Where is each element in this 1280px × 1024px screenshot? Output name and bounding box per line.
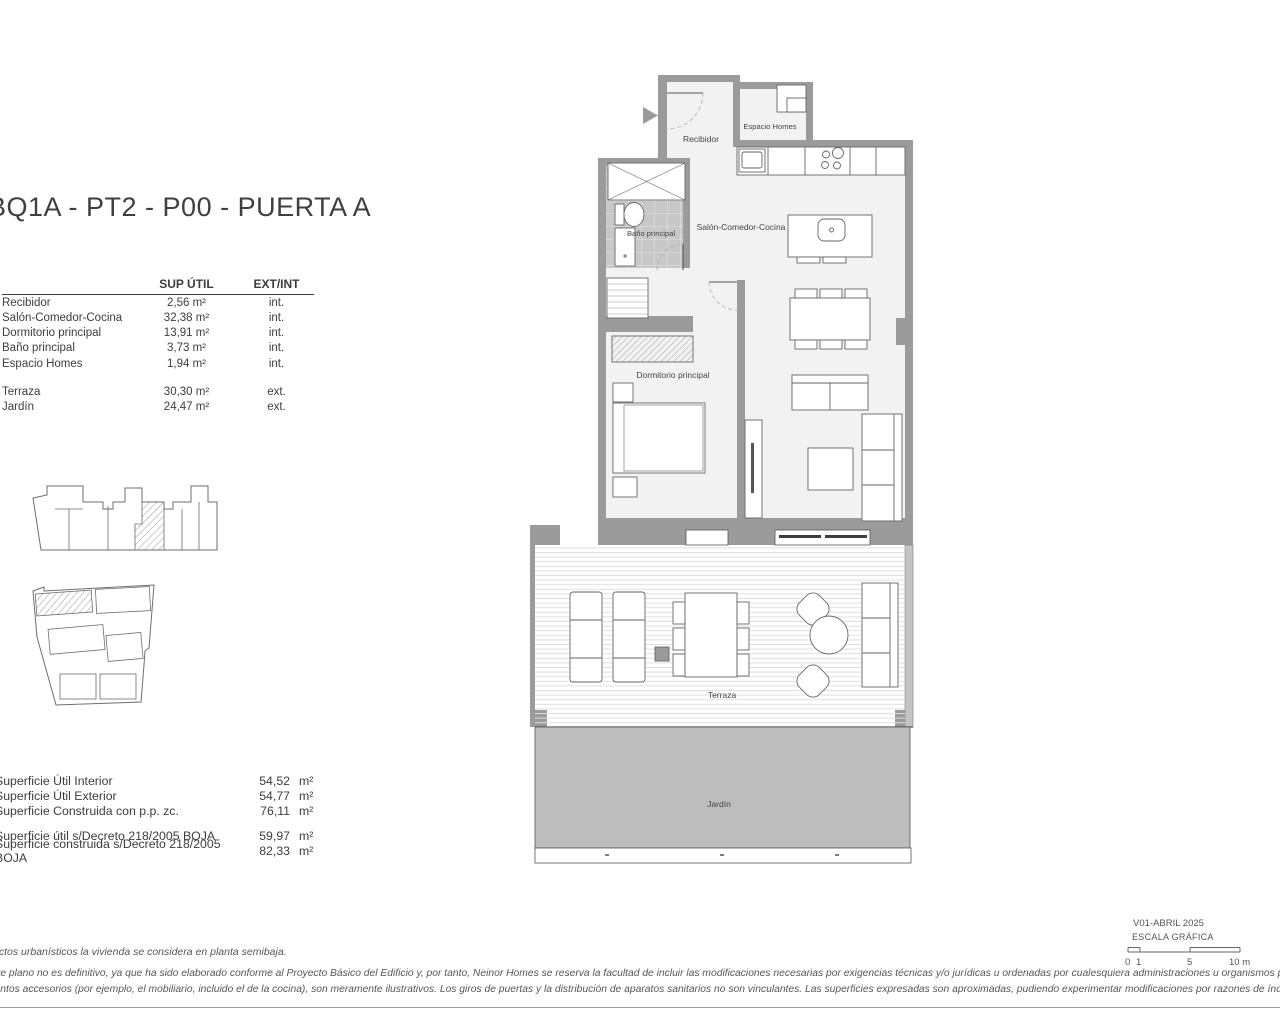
dining-chair bbox=[845, 289, 867, 298]
room-ext-int: int. bbox=[239, 342, 314, 354]
cooktop-burner bbox=[834, 162, 841, 169]
building-elevation-sketch bbox=[25, 478, 225, 558]
site-block bbox=[100, 674, 136, 699]
scale-tick-5: 5 bbox=[1187, 957, 1192, 968]
summary-value: 76,11 bbox=[246, 804, 290, 818]
room-name: Dormitorio principal bbox=[2, 327, 134, 339]
table-row: Jardín 24,47 m² ext. bbox=[2, 400, 314, 415]
room-ext-int: ext. bbox=[239, 386, 314, 398]
garden bbox=[535, 727, 911, 863]
tv bbox=[751, 443, 754, 493]
scale-tick-0: 0 bbox=[1125, 957, 1130, 968]
summary-gap bbox=[0, 819, 325, 829]
room-label-espacio-homes: Espacio Homes bbox=[743, 122, 796, 131]
room-area: 13,91 m² bbox=[134, 327, 239, 339]
disclaimer-line-1: ente plano no es definitivo, ya que ha s… bbox=[0, 968, 1280, 979]
summary-row: Superficie Construida con p.p. zc. 76,11… bbox=[0, 803, 325, 818]
room-ext-int: int. bbox=[239, 312, 314, 324]
terrace-wall bbox=[530, 535, 535, 727]
highlighted-unit bbox=[135, 502, 164, 550]
room-label-terraza: Terraza bbox=[708, 690, 737, 700]
room-ext-int: ext. bbox=[239, 401, 314, 413]
room-ext-int: int. bbox=[239, 358, 314, 370]
wall bbox=[806, 82, 813, 145]
outdoor-chair bbox=[673, 602, 685, 624]
room-surface-table: SUP ÚTIL EXT/INT Recibidor 2,56 m² int. … bbox=[2, 277, 314, 414]
room-area: 30,30 m² bbox=[134, 386, 239, 398]
toilet-tank bbox=[615, 204, 624, 225]
room-area: 32,38 m² bbox=[134, 312, 239, 324]
glazing-panel bbox=[779, 535, 821, 538]
windows bbox=[686, 530, 870, 545]
utility-appliance-inner bbox=[787, 98, 806, 112]
room-label-jardin: Jardín bbox=[707, 799, 731, 809]
dining-chair bbox=[845, 340, 867, 349]
summary-label: Superficie Útil Exterior bbox=[0, 789, 246, 803]
wall bbox=[660, 75, 740, 82]
table-row: Salón-Comedor-Cocina 32,38 m² int. bbox=[2, 311, 314, 326]
room-area: 1,94 m² bbox=[134, 358, 239, 370]
cooktop-burner bbox=[833, 148, 844, 159]
summary-value: 59,97 bbox=[246, 829, 290, 843]
table-row: Dormitorio principal 13,91 m² int. bbox=[2, 326, 314, 341]
outdoor-round-table bbox=[810, 616, 848, 654]
column-header-sup-util: SUP ÚTIL bbox=[134, 277, 239, 291]
floor-plan-sheet: { "header": { "title": "BQ1A - PT2 - P00… bbox=[0, 0, 1280, 1024]
version-label: V01-ABRIL 2025 bbox=[1133, 918, 1204, 929]
outdoor-dining-table bbox=[685, 593, 737, 677]
graphic-scale-bar: 0 1 5 10 m bbox=[1123, 944, 1258, 970]
summary-unit: m² bbox=[299, 844, 325, 858]
room-name: Terraza bbox=[2, 386, 134, 398]
table-row: Espacio Homes 1,94 m² int. bbox=[2, 356, 314, 371]
scale-tick-10: 10 m bbox=[1229, 957, 1250, 968]
summary-row: Superficie Útil Exterior 54,77 m² bbox=[0, 788, 325, 803]
kitchen-sink-basin bbox=[742, 152, 762, 168]
site-block bbox=[95, 587, 150, 614]
sun-lounger bbox=[570, 592, 602, 682]
summary-label: Superficie Construida con p.p. zc. bbox=[0, 804, 246, 818]
disclaimer-line-2: mentos accesorios (por ejemplo, el mobil… bbox=[0, 984, 1280, 995]
nightstand bbox=[613, 477, 637, 497]
floor-plan-svg: Recibidor Espacio Homes Salón-Comedor-Co… bbox=[525, 58, 945, 878]
small-side-table bbox=[655, 647, 669, 661]
column-header-ext-int: EXT/INT bbox=[239, 277, 314, 291]
scale-title: ESCALA GRÁFICA bbox=[1132, 932, 1214, 942]
stool bbox=[823, 257, 846, 263]
sun-lounger bbox=[613, 592, 645, 682]
cooktop-burner bbox=[822, 162, 829, 169]
elevation-divisions bbox=[55, 502, 199, 550]
wall bbox=[658, 75, 667, 160]
outdoor-chair bbox=[737, 602, 749, 624]
table-row: Baño principal 3,73 m² int. bbox=[2, 341, 314, 356]
side-sofa bbox=[862, 414, 902, 521]
site-block bbox=[106, 632, 143, 661]
coffee-table bbox=[808, 448, 853, 490]
wall bbox=[733, 140, 912, 147]
bed bbox=[613, 403, 705, 473]
toilet-bowl bbox=[624, 203, 644, 227]
wall bbox=[737, 280, 745, 535]
summary-unit: m² bbox=[299, 804, 325, 818]
scale-tick-1: 1 bbox=[1136, 957, 1141, 968]
summary-label: Superficie Útil Interior bbox=[0, 774, 246, 788]
summary-value: 54,52 bbox=[246, 774, 290, 788]
terrace-side-wall bbox=[905, 545, 913, 727]
summary-unit: m² bbox=[299, 829, 325, 843]
summary-value: 82,33 bbox=[246, 844, 290, 858]
room-label-dormitorio: Dormitorio principal bbox=[636, 370, 709, 380]
outdoor-sofa bbox=[862, 583, 898, 687]
room-label-bano: Baño principal bbox=[627, 229, 675, 238]
wardrobe bbox=[612, 336, 693, 362]
surface-summary: Superficie Útil Interior 54,52 m² Superf… bbox=[0, 773, 325, 859]
room-name: Jardín bbox=[2, 401, 134, 413]
dining-chair bbox=[820, 289, 842, 298]
table-header: SUP ÚTIL EXT/INT bbox=[2, 277, 314, 295]
dining-chair bbox=[795, 340, 817, 349]
bedroom-window bbox=[686, 530, 728, 545]
table-row: Terraza 30,30 m² ext. bbox=[2, 385, 314, 400]
summary-unit: m² bbox=[299, 774, 325, 788]
scale-bar-lines bbox=[1128, 948, 1240, 953]
room-label-recibidor: Recibidor bbox=[683, 134, 719, 144]
kitchen-island bbox=[788, 215, 872, 257]
highlighted-block bbox=[35, 590, 92, 616]
stool bbox=[797, 257, 820, 263]
site-block bbox=[60, 674, 96, 699]
footer-divider bbox=[0, 1007, 1280, 1008]
summary-row: Superficie Útil Interior 54,52 m² bbox=[0, 773, 325, 788]
room-ext-int: int. bbox=[239, 327, 314, 339]
glazing-panel bbox=[825, 535, 867, 538]
room-area: 24,47 m² bbox=[134, 401, 239, 413]
room-name: Espacio Homes bbox=[2, 358, 134, 370]
outdoor-chair bbox=[737, 654, 749, 676]
garden-area bbox=[535, 727, 910, 848]
outdoor-chair bbox=[737, 628, 749, 650]
room-area: 3,73 m² bbox=[134, 342, 239, 354]
wall bbox=[733, 82, 740, 147]
wall-pilaster bbox=[896, 318, 905, 345]
room-name: Recibidor bbox=[2, 297, 134, 309]
summary-row: Superficie construida s/Decreto 218/2005… bbox=[0, 844, 325, 859]
room-name: Baño principal bbox=[2, 342, 134, 354]
site-block bbox=[48, 625, 105, 655]
elevation-outline bbox=[33, 486, 217, 550]
cooktop-burner bbox=[823, 151, 830, 158]
plan-title: BQ1A - PT2 - P00 - PUERTA A bbox=[0, 192, 371, 223]
room-ext-int: int. bbox=[239, 297, 314, 309]
table-gap bbox=[2, 371, 314, 384]
summary-label: Superficie construida s/Decreto 218/2005… bbox=[0, 837, 246, 865]
table-row: Recibidor 2,56 m² int. bbox=[2, 296, 314, 311]
faucet-dot bbox=[623, 254, 626, 257]
dining-chair bbox=[820, 340, 842, 349]
site-plan-sketch bbox=[25, 575, 165, 710]
room-name: Salón-Comedor-Cocina bbox=[2, 312, 134, 324]
wall bbox=[905, 140, 913, 545]
urban-note: ectos urbanísticos la vivienda se consid… bbox=[0, 946, 287, 958]
wall bbox=[598, 158, 606, 518]
room-area: 2,56 m² bbox=[134, 297, 239, 309]
outdoor-chair bbox=[673, 654, 685, 676]
entry-arrow-icon bbox=[643, 107, 658, 124]
dining-chair bbox=[795, 289, 817, 298]
summary-value: 54,77 bbox=[246, 789, 290, 803]
nightstand bbox=[613, 383, 633, 402]
dining-table bbox=[790, 298, 870, 340]
summary-unit: m² bbox=[299, 789, 325, 803]
room-label-salon: Salón-Comedor-Cocina bbox=[697, 222, 786, 232]
outdoor-chair bbox=[673, 628, 685, 650]
